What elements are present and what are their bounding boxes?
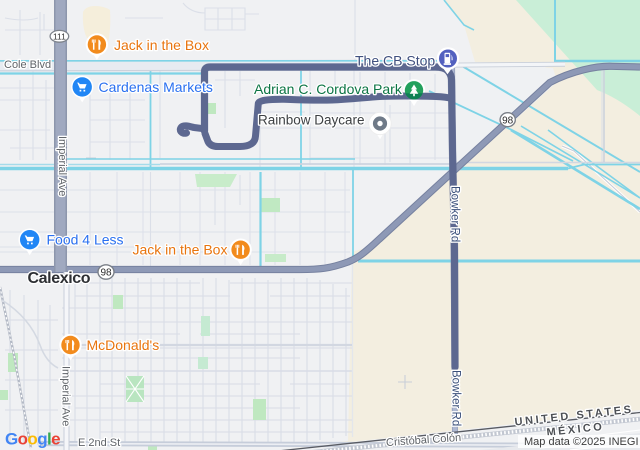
svg-text:Bowker Rd: Bowker Rd bbox=[449, 186, 461, 242]
svg-text:98: 98 bbox=[100, 268, 112, 279]
svg-text:Imperial Ave: Imperial Ave bbox=[60, 366, 72, 426]
svg-text:Cole Blvd: Cole Blvd bbox=[4, 59, 51, 71]
svg-text:E 2nd St: E 2nd St bbox=[78, 437, 120, 449]
svg-text:Bowker Rd: Bowker Rd bbox=[450, 370, 462, 426]
svg-text:Food 4 Less: Food 4 Less bbox=[47, 232, 124, 248]
svg-text:Jack in the Box: Jack in the Box bbox=[114, 37, 209, 53]
svg-text:Adrian C. Cordova Park: Adrian C. Cordova Park bbox=[254, 81, 403, 97]
svg-text:Cardenas Markets: Cardenas Markets bbox=[99, 79, 213, 95]
svg-text:Google: Google bbox=[5, 430, 60, 449]
svg-text:111: 111 bbox=[53, 32, 66, 42]
svg-text:Calexico: Calexico bbox=[28, 270, 91, 287]
svg-text:Jack in the Box: Jack in the Box bbox=[133, 242, 228, 258]
svg-text:98: 98 bbox=[502, 115, 514, 126]
svg-text:McDonald's: McDonald's bbox=[87, 337, 160, 353]
svg-text:Map data ©2025 INEGI: Map data ©2025 INEGI bbox=[524, 436, 639, 448]
svg-text:The CB Stop: The CB Stop bbox=[355, 52, 435, 68]
svg-text:Imperial Ave: Imperial Ave bbox=[56, 136, 68, 196]
svg-text:Rainbow Daycare: Rainbow Daycare bbox=[258, 113, 365, 128]
